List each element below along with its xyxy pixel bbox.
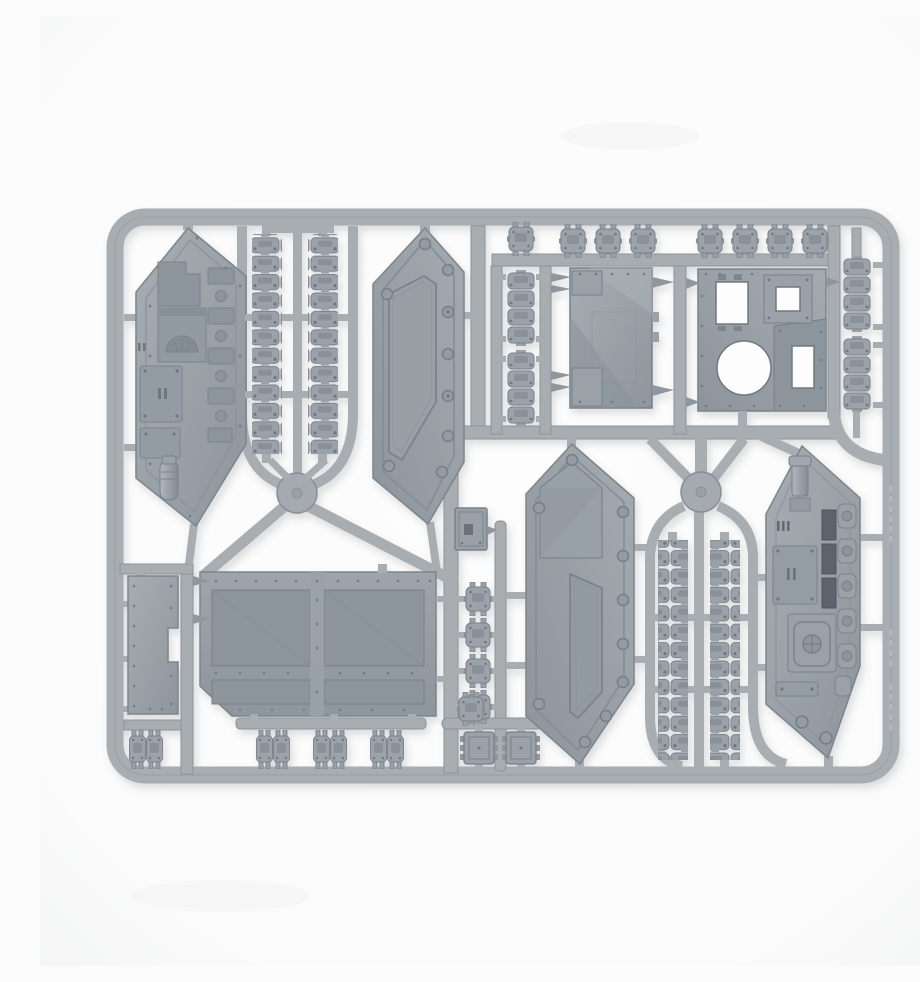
rail-b (491, 266, 502, 434)
rail-left-horizontal (120, 564, 193, 574)
rail-bottom-row-right (442, 718, 542, 729)
rail-g (495, 521, 506, 771)
rail-c (540, 266, 551, 434)
part-assault-ramp (193, 564, 446, 720)
background-smudge (560, 122, 700, 150)
part-hull-box-section (686, 269, 840, 427)
ejector-mark (292, 488, 302, 498)
rail-center-vertical-top (471, 226, 485, 436)
track-run-1 (252, 234, 282, 454)
background-smudge (130, 880, 310, 912)
rail-mid-horizontal (444, 426, 836, 439)
sprue-illustration (40, 16, 920, 966)
ejector-mark (696, 487, 706, 497)
vision-slit (464, 524, 473, 535)
stub-right-column (852, 228, 861, 260)
rail-f (181, 564, 193, 774)
circular-mount-hole (717, 341, 771, 395)
rail-bottom-row-left (124, 720, 181, 730)
track-run-3 (658, 540, 688, 760)
rail-e (674, 266, 686, 434)
rect-opening (792, 346, 814, 388)
exhaust-cylinder (160, 460, 178, 500)
rail-d (828, 226, 840, 418)
corner-plate (572, 368, 602, 406)
square-opening (716, 282, 748, 324)
sprue-product-photo (40, 16, 920, 966)
square-opening (776, 287, 800, 311)
center-rib (310, 572, 324, 716)
vent-slots (822, 510, 836, 608)
track-run-2 (308, 234, 338, 454)
track-run-4 (710, 540, 740, 760)
periscope-cylinder (792, 462, 808, 496)
corner-plate (572, 271, 602, 295)
